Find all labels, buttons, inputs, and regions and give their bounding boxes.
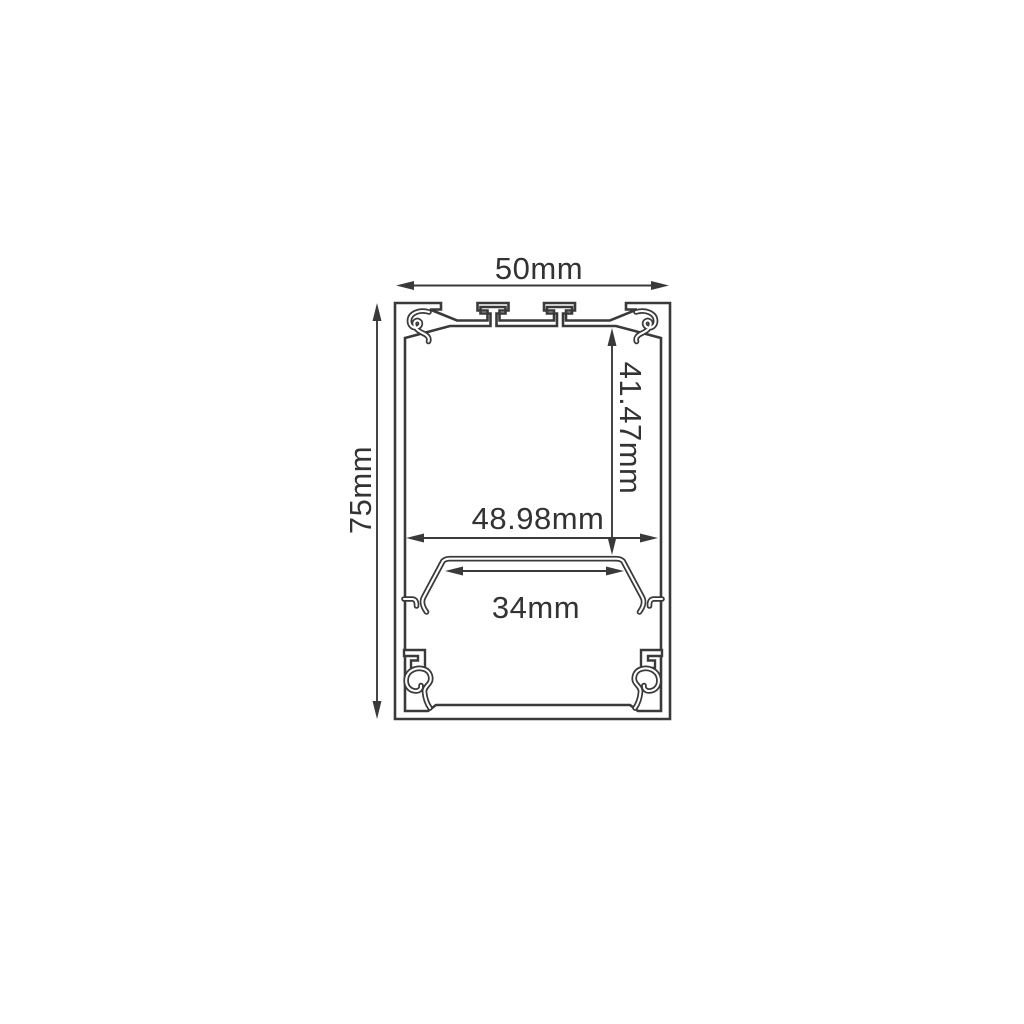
- dimension-cavity-width: 48.98mm: [406, 501, 658, 543]
- arrowhead-left-icon: [406, 534, 424, 543]
- dimension-label-cavity-width: 48.98mm: [472, 501, 605, 536]
- arrowhead-up-icon: [373, 303, 382, 321]
- dimension-overall-height: 75mm: [343, 303, 382, 719]
- arrowhead-left-icon: [396, 281, 414, 290]
- arrowhead-down-icon: [373, 701, 382, 719]
- arrowhead-left-icon: [445, 567, 463, 576]
- dimension-label-overall-height: 75mm: [343, 446, 378, 534]
- wall-finger-right: [641, 650, 662, 668]
- dimension-label-overall-width: 50mm: [495, 251, 583, 286]
- arrowhead-up-icon: [608, 328, 617, 346]
- wall-finger-left: [404, 650, 425, 668]
- dimension-label-cavity-depth: 41.47mm: [613, 362, 648, 495]
- arrowhead-right-icon: [606, 567, 624, 576]
- arrowhead-right-icon: [651, 281, 669, 290]
- dimension-overall-width: 50mm: [396, 251, 669, 290]
- arrowhead-right-icon: [640, 534, 658, 543]
- drawing-canvas: 50mm 75mm 41.47mm 48.98mm 34: [0, 0, 1024, 1024]
- dimension-cavity-depth: 41.47mm: [608, 328, 649, 555]
- dimension-label-shelf-width: 34mm: [492, 590, 580, 625]
- dimension-shelf-width: 34mm: [445, 567, 624, 626]
- profile-drawing: 50mm 75mm 41.47mm 48.98mm 34: [0, 0, 1024, 1024]
- arrowhead-down-icon: [608, 537, 617, 555]
- mounting-clip-right: [634, 668, 659, 708]
- mounting-clip-left: [406, 668, 431, 708]
